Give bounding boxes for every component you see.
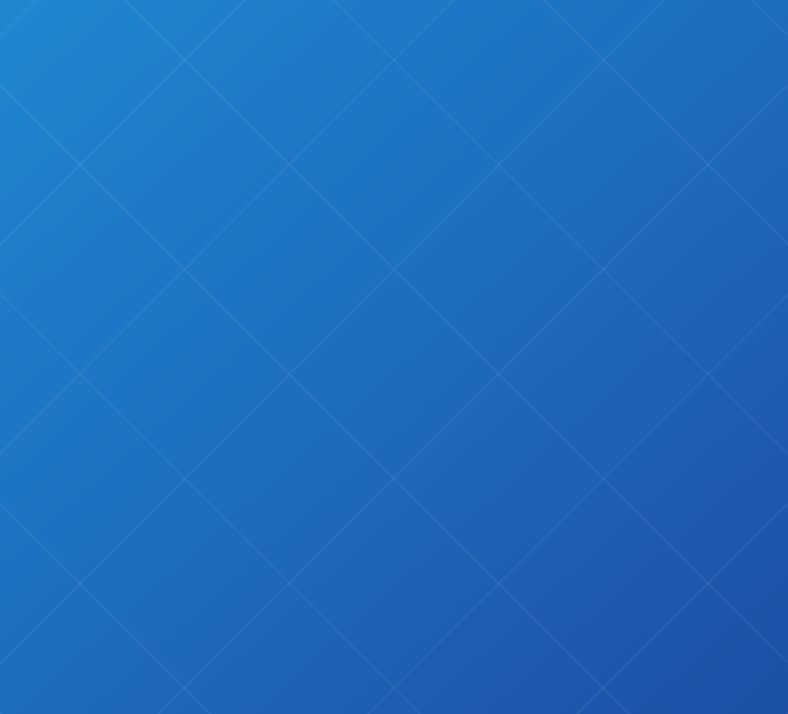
floorplan-3d-render xyxy=(0,0,788,714)
poster-background xyxy=(0,0,788,714)
poster-header xyxy=(0,16,788,47)
net-area-text xyxy=(0,23,788,47)
